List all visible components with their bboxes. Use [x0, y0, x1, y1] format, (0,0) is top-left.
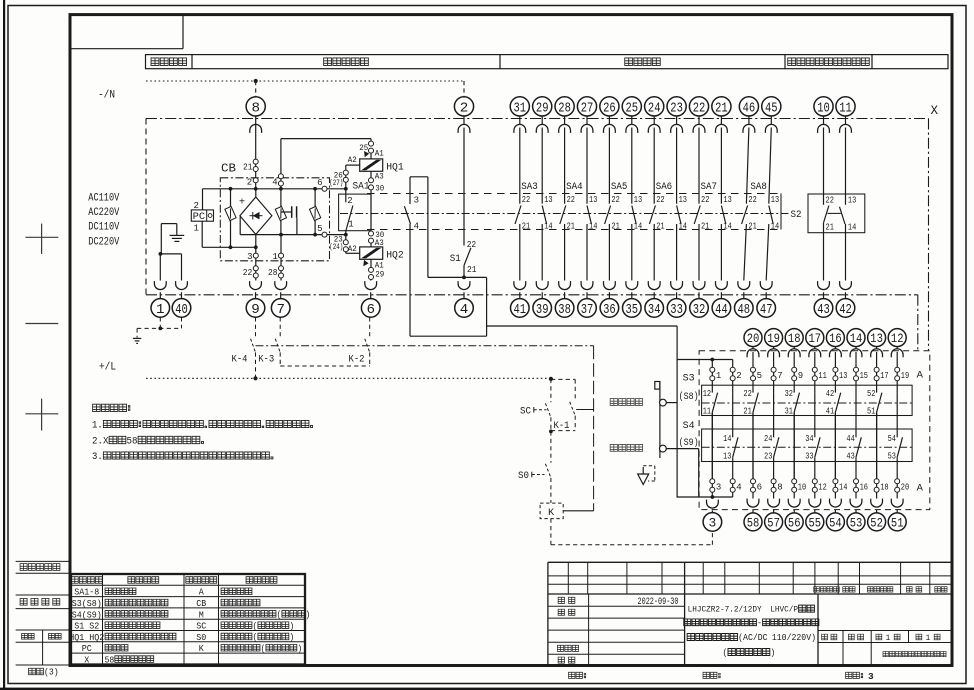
svg-text:57: 57	[767, 516, 780, 531]
svg-text:13: 13	[589, 195, 597, 205]
svg-text:22: 22	[656, 195, 664, 205]
svg-text:22: 22	[826, 196, 834, 206]
svg-text:12: 12	[891, 331, 904, 346]
svg-text:46: 46	[743, 100, 756, 116]
svg-text:40: 40	[175, 302, 188, 318]
svg-text:21: 21	[826, 223, 834, 233]
svg-text:16: 16	[829, 331, 842, 346]
svg-text:47: 47	[760, 302, 773, 318]
svg-text:43: 43	[846, 452, 854, 462]
svg-text:9: 9	[798, 371, 803, 381]
svg-text:20: 20	[901, 483, 909, 493]
svg-text:58: 58	[747, 516, 760, 531]
svg-text:17: 17	[880, 371, 888, 381]
svg-text:A3: A3	[375, 172, 384, 182]
svg-text:53: 53	[888, 452, 896, 462]
svg-text:53: 53	[850, 516, 863, 531]
svg-text:LHVC/P: LHVC/P	[770, 605, 798, 615]
svg-text:3.: 3.	[92, 451, 103, 462]
svg-text:K-1: K-1	[554, 420, 570, 431]
svg-text:3: 3	[708, 516, 716, 531]
svg-text:58: 58	[126, 437, 137, 448]
svg-text:S0: S0	[196, 632, 206, 643]
svg-text:18: 18	[880, 483, 888, 493]
svg-text:21: 21	[567, 222, 575, 232]
svg-text:54: 54	[829, 516, 842, 531]
svg-text:15: 15	[860, 371, 868, 381]
svg-text:2: 2	[736, 371, 741, 381]
svg-text:14: 14	[723, 434, 731, 444]
svg-text:2: 2	[247, 178, 252, 188]
svg-text:K-2: K-2	[349, 354, 365, 365]
svg-text:21: 21	[701, 222, 709, 232]
svg-text:42: 42	[826, 389, 834, 399]
svg-text:1: 1	[156, 302, 165, 318]
svg-text:S4: S4	[683, 420, 695, 432]
svg-text:21: 21	[611, 222, 619, 232]
svg-text:24: 24	[648, 100, 661, 116]
svg-text:29: 29	[375, 270, 384, 280]
svg-text:13: 13	[723, 195, 731, 205]
svg-text:K: K	[199, 643, 204, 654]
svg-text:1: 1	[886, 633, 891, 643]
svg-text:AC220V: AC220V	[88, 207, 120, 219]
svg-text:22: 22	[567, 195, 575, 205]
svg-text:SC: SC	[196, 621, 206, 632]
svg-text:4: 4	[460, 302, 469, 318]
svg-text:14: 14	[634, 222, 642, 232]
svg-text:21: 21	[522, 222, 530, 232]
svg-text:2: 2	[347, 196, 352, 206]
svg-text:K-3: K-3	[258, 354, 274, 365]
svg-text:16: 16	[860, 483, 868, 493]
svg-text:10: 10	[798, 483, 806, 493]
svg-text:6: 6	[757, 483, 762, 493]
svg-text:55: 55	[809, 516, 822, 531]
svg-text:3: 3	[247, 252, 252, 262]
svg-text:21: 21	[743, 407, 751, 417]
svg-text:23: 23	[764, 452, 772, 462]
svg-text:27: 27	[581, 100, 594, 116]
svg-text:HQ2: HQ2	[386, 249, 404, 261]
svg-text:21: 21	[467, 265, 477, 275]
svg-text:M: M	[199, 609, 204, 620]
svg-text:21: 21	[243, 162, 253, 172]
svg-text:33: 33	[670, 302, 683, 318]
svg-text:44: 44	[715, 302, 728, 318]
svg-text:8: 8	[251, 100, 260, 116]
svg-text:SA5: SA5	[611, 182, 628, 193]
svg-text:(3): (3)	[44, 668, 59, 678]
svg-text:S0: S0	[518, 471, 529, 482]
svg-text:30: 30	[375, 183, 384, 193]
svg-text:20: 20	[747, 331, 760, 346]
svg-text:AC110V: AC110V	[88, 193, 120, 205]
svg-text:SA8: SA8	[750, 182, 767, 193]
svg-text:9: 9	[251, 302, 260, 318]
svg-text:CB: CB	[221, 163, 236, 176]
svg-text:): )	[770, 648, 775, 658]
svg-text:33: 33	[805, 452, 813, 462]
svg-text:32: 32	[693, 302, 706, 318]
svg-text:(: (	[723, 648, 728, 658]
svg-text:110/220V): 110/220V)	[772, 633, 816, 643]
svg-text:(: (	[277, 610, 282, 620]
svg-text:41: 41	[514, 302, 527, 318]
svg-text:HQ1 HQ2: HQ1 HQ2	[69, 632, 104, 643]
svg-text:4: 4	[736, 483, 741, 493]
svg-text:14: 14	[679, 222, 687, 232]
svg-text:(S9): (S9)	[679, 437, 699, 449]
svg-text:35: 35	[626, 302, 639, 318]
svg-text:22: 22	[467, 240, 477, 250]
svg-text:S3: S3	[683, 372, 695, 384]
svg-text:1.: 1.	[92, 420, 103, 431]
svg-text:51: 51	[867, 407, 875, 417]
svg-text:52: 52	[870, 516, 883, 531]
svg-text:5: 5	[757, 371, 762, 381]
svg-text:SA6: SA6	[656, 182, 673, 193]
svg-text:(AC/DC: (AC/DC	[738, 633, 768, 643]
svg-text:+/L: +/L	[99, 362, 116, 374]
svg-text:38: 38	[558, 302, 571, 318]
svg-text:22: 22	[243, 268, 253, 278]
svg-text:11: 11	[818, 371, 826, 381]
svg-text:SA1: SA1	[353, 181, 370, 193]
svg-text:A: A	[917, 370, 924, 382]
svg-text:K: K	[548, 508, 555, 519]
svg-text:1: 1	[716, 371, 721, 381]
svg-text:34: 34	[805, 434, 813, 444]
svg-text:22: 22	[701, 195, 709, 205]
svg-text:21: 21	[656, 222, 664, 232]
svg-text:13: 13	[544, 195, 552, 205]
svg-text:4: 4	[272, 177, 277, 187]
svg-text:1: 1	[272, 252, 277, 262]
svg-text:56: 56	[788, 516, 801, 531]
svg-text:14: 14	[723, 222, 731, 232]
svg-text:13: 13	[839, 371, 847, 381]
svg-text:3: 3	[414, 196, 419, 206]
svg-text:13: 13	[771, 195, 779, 205]
svg-text:43: 43	[817, 302, 830, 318]
svg-text:3: 3	[868, 671, 874, 682]
svg-text:13: 13	[723, 452, 731, 462]
svg-text:11: 11	[839, 100, 852, 116]
svg-text:A1: A1	[375, 148, 384, 158]
svg-text:4: 4	[414, 221, 419, 231]
svg-text:14: 14	[848, 223, 856, 233]
svg-text:S1: S1	[450, 253, 461, 265]
svg-text:36: 36	[603, 302, 616, 318]
svg-text:44: 44	[846, 434, 854, 444]
svg-text:22: 22	[522, 195, 530, 205]
svg-text:(: (	[261, 644, 266, 654]
svg-text:S2: S2	[791, 209, 802, 221]
svg-text:S4(S9): S4(S9)	[72, 609, 102, 620]
svg-text:22: 22	[748, 195, 756, 205]
svg-text:12: 12	[818, 483, 826, 493]
svg-text:): )	[289, 633, 294, 643]
svg-text:13: 13	[634, 195, 642, 205]
svg-text:SC: SC	[520, 406, 531, 417]
svg-text:25: 25	[626, 100, 639, 116]
svg-text:21: 21	[715, 100, 728, 116]
svg-text:28: 28	[558, 100, 571, 116]
svg-text:6: 6	[317, 178, 322, 188]
svg-text:13: 13	[679, 195, 687, 205]
svg-text:SA1-8: SA1-8	[74, 587, 99, 598]
svg-text:-: -	[757, 618, 762, 629]
svg-text:): )	[297, 644, 302, 654]
svg-text:X: X	[84, 655, 89, 666]
svg-text:51: 51	[891, 516, 904, 531]
svg-text:13: 13	[848, 196, 856, 206]
svg-text:SA3: SA3	[521, 182, 538, 193]
svg-text:42: 42	[839, 302, 852, 318]
svg-text:2.X: 2.X	[92, 437, 108, 448]
svg-text:LHJCZR2-7.2/12DY: LHJCZR2-7.2/12DY	[688, 605, 762, 615]
svg-text:23: 23	[670, 100, 683, 116]
svg-text:13: 13	[870, 331, 883, 346]
svg-text:39: 39	[536, 302, 549, 318]
svg-text:10: 10	[817, 100, 830, 116]
svg-text:CB: CB	[196, 598, 206, 609]
svg-text:5: 5	[317, 224, 322, 234]
svg-text:1: 1	[193, 224, 198, 234]
svg-text:26: 26	[603, 100, 616, 116]
svg-text:A2: A2	[348, 244, 357, 254]
svg-text:29: 29	[536, 100, 549, 116]
svg-text:14: 14	[850, 331, 863, 346]
svg-text:SA7: SA7	[701, 182, 718, 193]
svg-text:54: 54	[888, 434, 896, 444]
svg-text:52: 52	[867, 389, 875, 399]
svg-text:41: 41	[826, 407, 834, 417]
svg-text:(S8): (S8)	[679, 391, 699, 403]
svg-text:2022-09-30: 2022-09-30	[638, 596, 679, 608]
svg-text:6: 6	[366, 302, 375, 318]
svg-text:(24): (24)	[329, 242, 343, 252]
svg-text:+: +	[239, 198, 245, 209]
svg-text:21: 21	[748, 222, 756, 232]
svg-text:48: 48	[738, 302, 751, 318]
svg-text:24: 24	[764, 434, 772, 444]
svg-text:22: 22	[743, 389, 751, 399]
svg-text:A2: A2	[348, 155, 357, 165]
svg-text:58: 58	[105, 655, 115, 665]
svg-text:28: 28	[268, 268, 278, 278]
svg-text:32: 32	[785, 389, 793, 399]
svg-text:45: 45	[765, 100, 778, 116]
svg-text:22: 22	[693, 100, 706, 116]
svg-text:14: 14	[771, 222, 779, 232]
svg-text:17: 17	[809, 331, 822, 346]
svg-text:X: X	[931, 104, 939, 118]
svg-text:(: (	[253, 633, 258, 643]
svg-text:7: 7	[777, 371, 782, 381]
svg-text:): )	[305, 610, 310, 620]
svg-text:(: (	[253, 621, 258, 631]
svg-text:25: 25	[359, 143, 368, 153]
svg-text:34: 34	[648, 302, 661, 318]
svg-text:8: 8	[777, 483, 782, 493]
svg-text:7: 7	[276, 302, 285, 318]
svg-text:PC: PC	[193, 211, 206, 222]
svg-text:HQ1: HQ1	[386, 161, 404, 173]
svg-text:14: 14	[589, 222, 597, 232]
svg-text:2: 2	[193, 201, 198, 211]
svg-text:SA4: SA4	[566, 182, 583, 193]
svg-text:11: 11	[703, 407, 711, 417]
svg-text:12: 12	[703, 389, 711, 399]
svg-text:14: 14	[544, 222, 552, 232]
svg-text:DC220V: DC220V	[88, 236, 120, 248]
svg-text:DC110V: DC110V	[88, 222, 120, 234]
svg-text:S1 S2: S1 S2	[74, 621, 99, 632]
svg-text:-/N: -/N	[98, 90, 115, 102]
svg-text:37: 37	[581, 302, 594, 318]
svg-text:): )	[289, 621, 294, 631]
svg-text:31: 31	[514, 100, 527, 116]
svg-text:(27): (27)	[329, 178, 343, 188]
svg-text:K-4: K-4	[232, 354, 248, 365]
svg-text:A: A	[917, 482, 924, 494]
svg-text:2: 2	[460, 100, 469, 116]
svg-text:19: 19	[901, 371, 909, 381]
svg-text:14: 14	[839, 483, 847, 493]
svg-text:3: 3	[716, 483, 721, 493]
svg-text:1: 1	[926, 633, 931, 643]
svg-text:18: 18	[788, 331, 801, 346]
svg-text:PC: PC	[82, 643, 92, 654]
svg-text:A: A	[199, 587, 204, 598]
svg-text:31: 31	[785, 407, 793, 417]
svg-text:22: 22	[611, 195, 619, 205]
svg-text:19: 19	[767, 331, 780, 346]
svg-text:S3(S8): S3(S8)	[72, 598, 102, 609]
